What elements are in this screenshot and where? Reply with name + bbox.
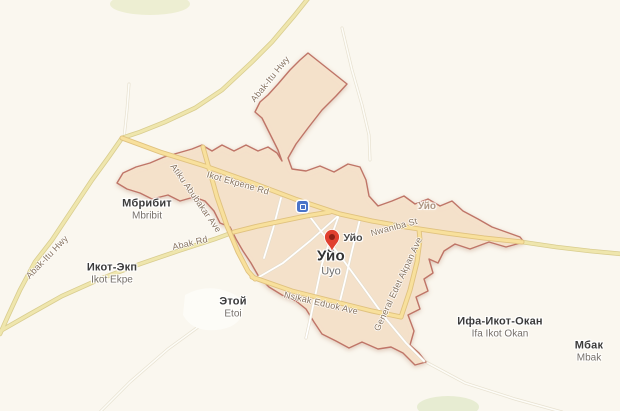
settlement-name-en: Etoi [219,309,246,321]
map-canvas[interactable]: Мбрибит Mbribit Икот-Экп Ikot Ekpe Этой … [0,0,620,411]
settlement-name-en: Ikot Ekpe [87,275,137,287]
district-label-uyo[interactable]: Уйо [343,232,362,244]
district-label-uyo-faint: Уйо [418,201,436,213]
map-pin-icon[interactable] [320,224,344,254]
settlement-label-ifa-ikot-okan[interactable]: Ифа-Икот-Окан Ifa Ikot Okan [457,316,543,341]
settlement-name-en: Ifa Ikot Okan [457,329,543,341]
settlement-name-ru: Мбак [575,340,603,353]
settlement-name-ru: Икот-Экп [87,262,137,275]
settlement-name-ru: Ифа-Икот-Окан [457,316,543,329]
settlement-label-etoi[interactable]: Этой Etoi [219,296,246,321]
settlement-label-ikot-ekpe[interactable]: Икот-Экп Ikot Ekpe [87,262,137,287]
settlement-name-ru: Этой [219,296,246,309]
settlement-label-mbak[interactable]: Мбак Mbak [575,340,603,365]
settlement-name-ru: Мбрибит [122,198,172,211]
settlement-name-en: Mbribit [122,211,172,223]
settlement-label-mbribit[interactable]: Мбрибит Mbribit [122,198,172,223]
station-glyph [300,204,306,210]
map-base-layer [0,0,620,411]
settlement-name-en: Mbak [575,353,603,365]
city-name-en: Uyo [317,265,345,278]
transit-station-icon[interactable] [297,201,308,212]
